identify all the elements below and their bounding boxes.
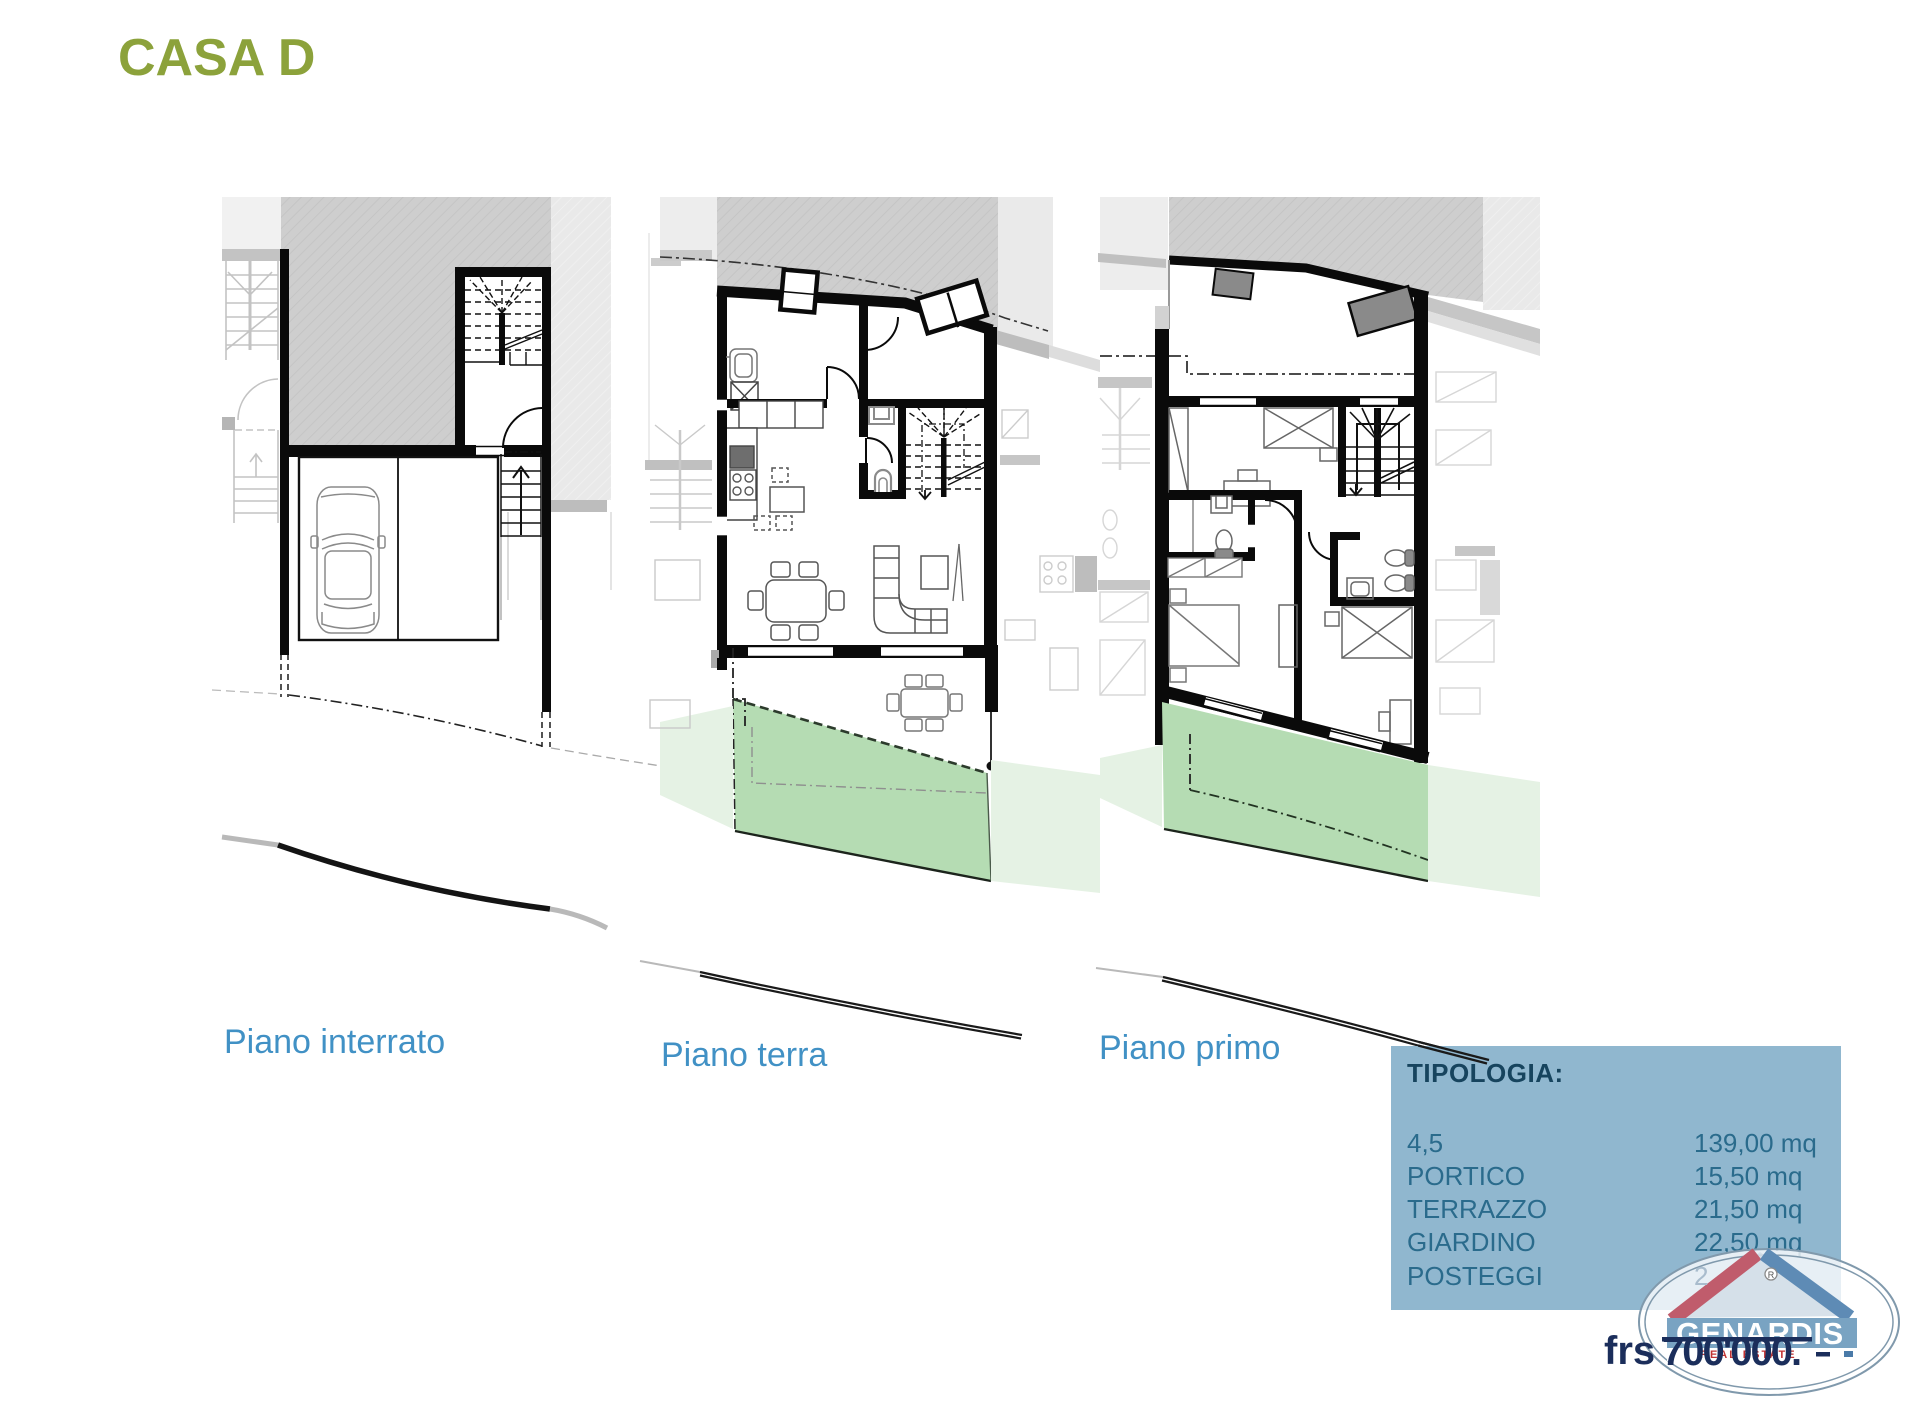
svg-text:Piano terra: Piano terra	[661, 1036, 827, 1074]
svg-text:Piano interrato: Piano interrato	[224, 1023, 445, 1061]
svg-text:PORTICO: PORTICO	[1407, 1161, 1525, 1191]
svg-text:R: R	[1768, 1270, 1775, 1280]
svg-text:CASA D: CASA D	[118, 29, 315, 87]
svg-text:Piano primo: Piano primo	[1099, 1029, 1280, 1067]
svg-text:GIARDINO: GIARDINO	[1407, 1227, 1536, 1257]
svg-text:POSTEGGI: POSTEGGI	[1407, 1261, 1543, 1291]
svg-text:frs: frs	[1604, 1329, 1655, 1373]
svg-text:4,5: 4,5	[1407, 1128, 1443, 1158]
svg-text:139,00 mq: 139,00 mq	[1694, 1128, 1817, 1158]
svg-text:TIPOLOGIA:: TIPOLOGIA:	[1407, 1058, 1564, 1088]
svg-text:700'000.: 700'000.	[1662, 1330, 1800, 1374]
svg-text:TERRAZZO: TERRAZZO	[1407, 1194, 1547, 1224]
svg-text:2: 2	[1694, 1261, 1708, 1291]
svg-text:15,50 mq: 15,50 mq	[1694, 1161, 1802, 1191]
svg-text:21,50 mq: 21,50 mq	[1694, 1194, 1802, 1224]
